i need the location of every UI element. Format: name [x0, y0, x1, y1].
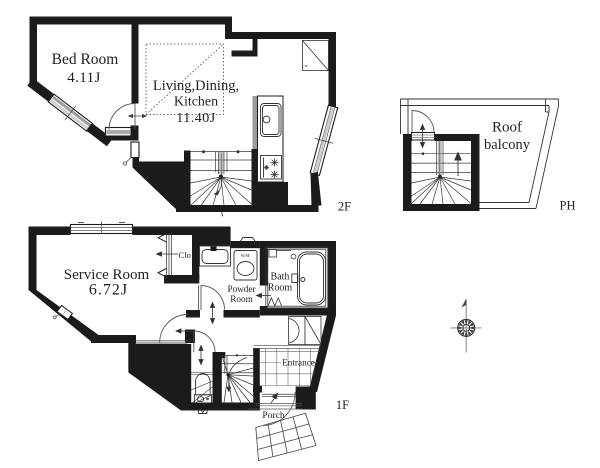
svg-text:Roof: Roof — [492, 120, 522, 136]
svg-text:Room: Room — [268, 283, 293, 294]
svg-text:W.M.: W.M. — [240, 253, 250, 258]
svg-text:Porch: Porch — [262, 411, 284, 421]
svg-text:Room: Room — [230, 294, 252, 304]
svg-text:Entrance: Entrance — [282, 358, 315, 368]
svg-text:Kitchen: Kitchen — [174, 95, 218, 110]
svg-text:PH: PH — [560, 199, 576, 213]
svg-text:Bed Room: Bed Room — [52, 51, 119, 68]
svg-text:6.72J: 6.72J — [89, 282, 128, 299]
svg-text:Living,Dining,: Living,Dining, — [153, 78, 239, 94]
svg-text:Clo: Clo — [179, 250, 191, 260]
svg-text:11.40J: 11.40J — [176, 111, 215, 126]
svg-text:Powder: Powder — [227, 284, 255, 294]
svg-text:w.: w. — [305, 63, 309, 68]
svg-text:balcony: balcony — [484, 137, 531, 153]
svg-text:1F: 1F — [336, 398, 349, 412]
svg-text:Bath: Bath — [271, 272, 290, 283]
svg-text:4.11J: 4.11J — [67, 70, 101, 86]
svg-text:2F: 2F — [338, 200, 351, 214]
